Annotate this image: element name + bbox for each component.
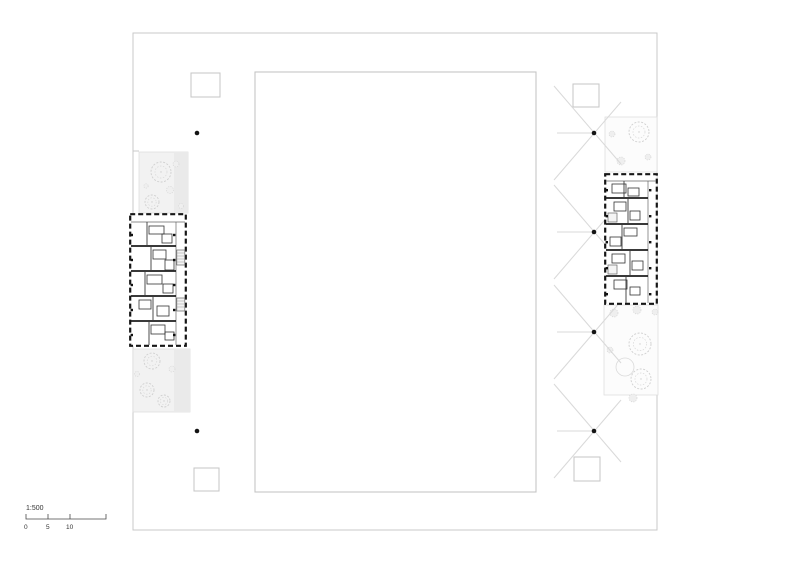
survey-dot — [592, 429, 597, 434]
stair-symbol — [177, 250, 185, 265]
tree-symbol — [144, 184, 148, 188]
building-east-floorplan — [605, 174, 657, 304]
scale-bar: 1:500 0 5 10 — [24, 505, 106, 531]
tree-symbol — [169, 366, 175, 372]
tree-symbol — [645, 154, 651, 160]
survey-dot — [592, 131, 597, 136]
stair-symbol — [177, 298, 185, 311]
survey-dot — [592, 330, 597, 335]
scale-ratio-label: 1:500 — [26, 505, 44, 512]
tree-symbol — [173, 161, 179, 167]
landscape-area-east-upper — [605, 117, 657, 172]
site-plan-drawing: 1:500 0 5 10 — [0, 0, 800, 565]
tree-symbol — [609, 131, 615, 137]
scale-tick-label-5: 5 — [46, 524, 50, 531]
courtyard — [255, 72, 536, 492]
tree-symbol — [135, 372, 140, 377]
rooflight-square — [194, 468, 219, 491]
site-plan-canvas: 1:500 0 5 10 — [0, 0, 800, 565]
rooflight-square — [573, 84, 599, 107]
scale-tick-label-10: 10 — [66, 524, 74, 531]
building-east-roof-outline — [605, 174, 657, 304]
survey-dot — [195, 429, 200, 434]
tree-symbol — [167, 187, 174, 194]
paving-band — [174, 349, 190, 412]
rooflight-square — [191, 73, 220, 97]
tree-symbol — [629, 394, 637, 402]
scale-bar-line — [26, 514, 106, 519]
building-west-floorplan — [130, 214, 186, 346]
rooflight-square — [574, 457, 600, 481]
survey-dot — [592, 230, 597, 235]
scale-tick-label-0: 0 — [24, 524, 28, 531]
tree-symbol — [652, 309, 658, 315]
tree-symbol — [179, 204, 184, 209]
survey-dot — [195, 131, 200, 136]
tree-symbol — [633, 306, 641, 314]
